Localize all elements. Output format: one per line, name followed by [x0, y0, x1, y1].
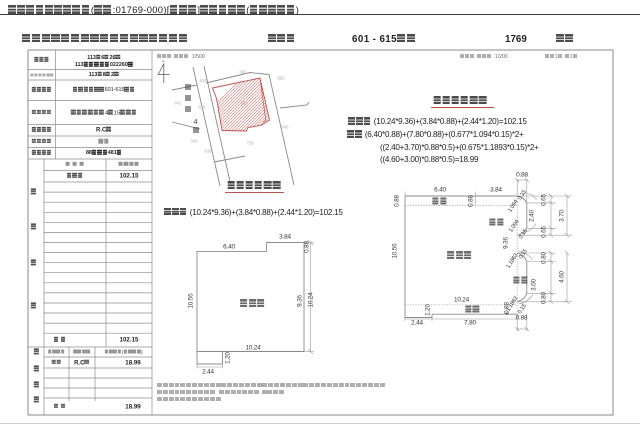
svg-text:608: 608: [282, 125, 290, 130]
svg-text:862: 862: [278, 76, 286, 81]
svg-text:601: 601: [241, 101, 249, 106]
svg-text:641: 641: [175, 101, 183, 106]
svg-text:618: 618: [199, 105, 207, 110]
svg-text:759: 759: [247, 141, 255, 146]
svg-text:602: 602: [240, 70, 248, 75]
svg-text:614: 614: [200, 78, 208, 83]
svg-text:916: 916: [205, 149, 213, 154]
svg-text:326: 326: [191, 139, 199, 144]
